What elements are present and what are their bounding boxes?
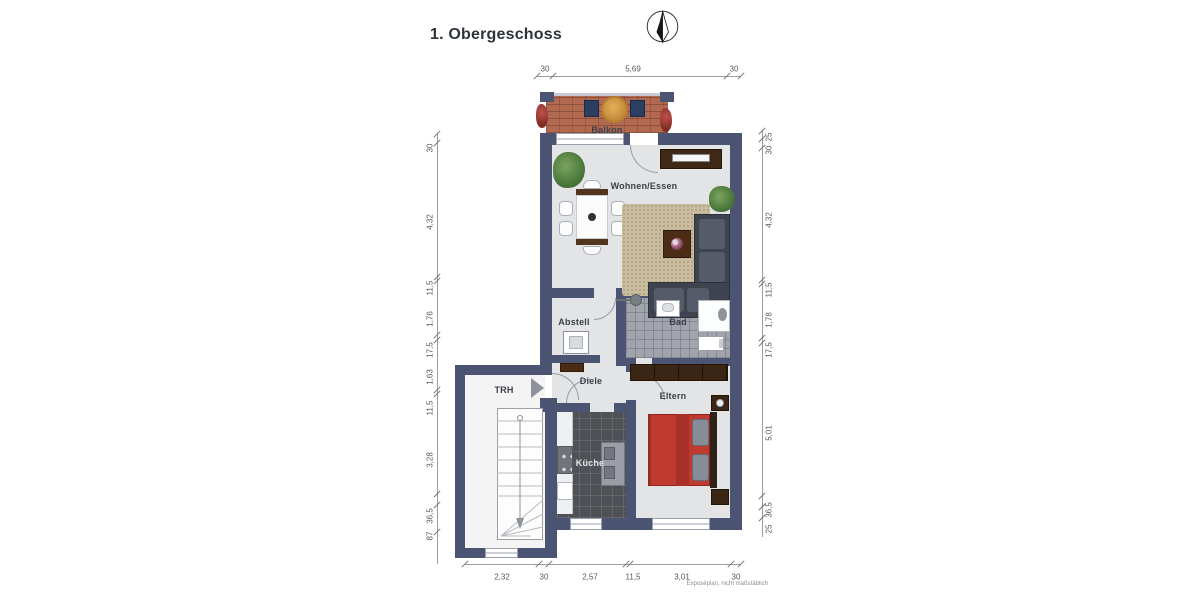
dim-label: 11,5 — [426, 401, 435, 416]
dim-label: 30 — [426, 144, 435, 153]
page-title: 1. Obergeschoss — [430, 26, 562, 44]
dim-label: 30 — [730, 65, 739, 74]
balcony-wall-cap-right — [660, 92, 674, 102]
dim-label: 1,76 — [426, 311, 435, 327]
dim-label: 3,28 — [426, 452, 435, 468]
floor-lamp — [630, 294, 642, 306]
room-label-trh: TRH — [494, 385, 513, 395]
dim-label: 36,5 — [426, 508, 435, 524]
wall-kitchen-left — [545, 403, 557, 558]
wall-stairwell-left — [455, 365, 465, 558]
dim-label: 36,5 — [765, 502, 774, 518]
dim-label: 17,5 — [426, 342, 435, 358]
dim-label: 30 — [540, 573, 549, 582]
wall-left — [540, 133, 552, 373]
dim-label: 30 — [765, 146, 774, 155]
toilet-tank — [719, 339, 723, 348]
dimension-line-top — [537, 76, 741, 77]
wall-living-south-a — [552, 288, 594, 298]
dim-label: 4,32 — [765, 212, 774, 228]
wall-bath-bottom-a — [616, 358, 626, 366]
dimension-line-left — [437, 134, 438, 564]
compass-north-icon — [644, 8, 681, 45]
balcony-chair — [630, 100, 645, 117]
window — [570, 518, 602, 530]
pillow — [692, 419, 709, 446]
dim-label: 4,32 — [426, 214, 435, 230]
shelf — [560, 363, 584, 372]
sofa-cushion — [699, 219, 725, 249]
footer-note: Exposéplan, nicht maßstäblich — [640, 581, 768, 587]
bed-fold — [676, 414, 689, 486]
room-label-diele: Diele — [580, 376, 603, 386]
balcony-round-table — [601, 96, 628, 123]
pillow — [692, 454, 709, 481]
dining-table-cap — [576, 239, 608, 245]
bed-headboard — [710, 412, 717, 488]
kitchen-sink — [557, 482, 573, 500]
flower-plant — [660, 108, 672, 132]
wall-abstell-bottom — [548, 355, 600, 363]
kitchen-chair — [604, 466, 615, 479]
staircase — [497, 408, 543, 540]
flower-plant — [536, 104, 548, 128]
tv-screen — [672, 154, 710, 162]
shower-head — [718, 308, 727, 321]
dim-label: 25 — [765, 525, 774, 534]
wardrobe — [630, 364, 728, 381]
dim-label: 25 — [765, 133, 774, 142]
dining-chair — [583, 180, 601, 189]
room-label-eltern: Eltern — [660, 391, 687, 401]
balcony-wall-cap-left — [540, 92, 554, 102]
wall-stairwell-top — [455, 365, 552, 375]
dining-chair — [583, 246, 601, 255]
balcony-railing — [546, 93, 668, 96]
entrance-direction-arrow-icon — [531, 378, 544, 398]
bathroom-sink-basin — [662, 303, 674, 312]
dim-label: 11,5 — [626, 573, 641, 582]
room-label-wohnen: Wohnen/Essen — [611, 181, 678, 191]
dimension-line-bottom — [465, 564, 741, 565]
dining-table-bowl — [588, 213, 596, 221]
room-label-bad: Bad — [669, 317, 687, 327]
dim-label: 5,69 — [625, 65, 641, 74]
dim-label: 2,32 — [494, 573, 510, 582]
balcony-chair — [584, 100, 599, 117]
coffee-table-flowers — [671, 238, 683, 250]
floor-lamp-stem — [616, 299, 630, 301]
window — [556, 133, 624, 145]
dim-label: 5,01 — [765, 425, 774, 441]
dim-label: 17,5 — [765, 342, 774, 358]
wall — [624, 133, 630, 145]
window — [652, 518, 710, 530]
dim-label: 30 — [541, 65, 550, 74]
dim-label: 11,5 — [426, 281, 435, 296]
floorplan-canvas: 1. Obergeschoss Balkon — [0, 0, 1200, 600]
bedside-lamp — [716, 399, 724, 407]
dining-chair — [559, 201, 573, 216]
dim-label: 1,63 — [426, 369, 435, 385]
dim-label: 11,5 — [765, 283, 774, 298]
sofa-cushion — [699, 252, 725, 282]
room-label-kueche: Küche — [576, 458, 605, 468]
dining-chair — [559, 221, 573, 236]
room-label-abstell: Abstell — [558, 317, 589, 327]
dimension-line-right — [762, 131, 763, 537]
dim-tick — [737, 72, 744, 79]
dim-label: 2,57 — [582, 573, 598, 582]
washing-machine-door — [569, 336, 583, 349]
nightstand — [711, 489, 729, 505]
dim-label: 1,78 — [765, 312, 774, 328]
dim-tick — [737, 560, 744, 567]
window — [485, 548, 518, 558]
wall-eltern-left-b — [626, 400, 636, 518]
wall-kitchen-top-a — [545, 403, 590, 412]
kitchen-chair — [604, 447, 615, 460]
stove — [557, 446, 573, 474]
dim-label: 87 — [426, 532, 435, 541]
